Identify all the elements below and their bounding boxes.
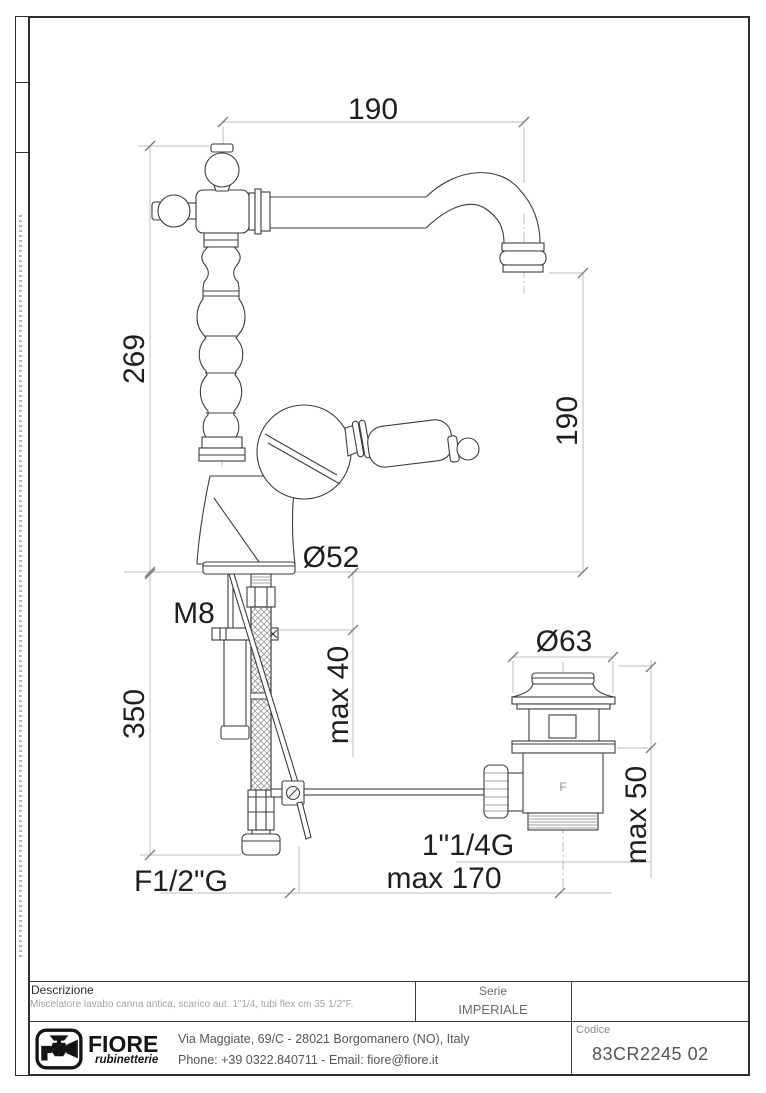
popup-horizontal-rod — [304, 789, 484, 795]
code-value: 83CR2245 02 — [592, 1044, 709, 1065]
dim-label-outlet-height: 190 — [551, 396, 584, 446]
description-text: Miscelatore lavabo canna antica, scarico… — [30, 999, 410, 1010]
code-label: Codice — [576, 1024, 610, 1036]
fixing-stud — [224, 640, 246, 726]
address-line-2: Phone: +39 0322.840711 - Email: fiore@fi… — [178, 1050, 470, 1071]
titleblock-divider — [30, 1021, 749, 1022]
dim-label-hose-thread: F1/2"G — [134, 865, 228, 898]
top-knob-cap — [211, 144, 233, 152]
dim-label-base-diameter: Ø52 — [303, 541, 360, 574]
dim-label-spout-reach: 190 — [348, 93, 398, 126]
titleblock-divider — [30, 981, 749, 982]
logo-tagline: rubinetterie — [95, 1054, 158, 1066]
waste-nut — [512, 741, 615, 753]
dim-label-waste-clamp: max 50 — [620, 766, 653, 864]
waste-upper-body — [529, 709, 599, 741]
hose-bottom-fitting — [248, 790, 274, 830]
lever-end-ball — [457, 438, 479, 460]
dim-label-waste-thread: 1"1/4G — [422, 829, 514, 862]
waste-group: F — [484, 673, 615, 830]
dim-label-total-height: 269 — [118, 334, 151, 384]
cartridge-dome — [257, 405, 351, 499]
popup-rod-lower — [297, 802, 311, 839]
titleblock-divider — [571, 981, 572, 1076]
left-knob — [158, 195, 190, 227]
waste-flange — [512, 697, 615, 704]
dim-label-stud-thread: M8 — [173, 597, 215, 630]
faucet-logo-icon — [35, 1028, 83, 1070]
spout-aerator — [500, 251, 546, 265]
series-cell: Serie IMPERIALE — [415, 984, 571, 1017]
logo-name: FIORE — [88, 1033, 158, 1055]
spout-cross-body — [196, 190, 249, 233]
dim-label-waste-flange-diameter: Ø63 — [536, 625, 593, 658]
hose-top-nut — [247, 587, 275, 607]
company-address: Via Maggiate, 69/C - 28021 Borgomanero (… — [178, 1029, 470, 1071]
fiore-logo: FIORE rubinetterie — [35, 1028, 158, 1070]
dim-label-rod-reach: max 170 — [386, 862, 501, 895]
dim-label-hose-length: 350 — [118, 689, 151, 739]
waste-threaded-tail — [528, 813, 598, 830]
address-line-1: Via Maggiate, 69/C - 28021 Borgomanero (… — [178, 1029, 470, 1050]
column-group — [197, 233, 245, 461]
waste-body-mark: F — [559, 780, 566, 794]
description-label: Descrizione — [31, 983, 94, 997]
faucet-technical-drawing: F 190 269 190 Ø52 M8 max 40 350 Ø63 max … — [0, 0, 766, 1093]
base-flange — [203, 562, 295, 574]
dim-label-deck-thickness: max 40 — [322, 646, 355, 744]
series-label: Serie — [415, 984, 571, 998]
lever-handle — [366, 418, 454, 469]
hose-end-nut — [242, 834, 280, 855]
top-knob — [205, 153, 239, 187]
spout-tip-ring — [502, 243, 544, 251]
series-value: IMPERIALE — [415, 1002, 571, 1017]
